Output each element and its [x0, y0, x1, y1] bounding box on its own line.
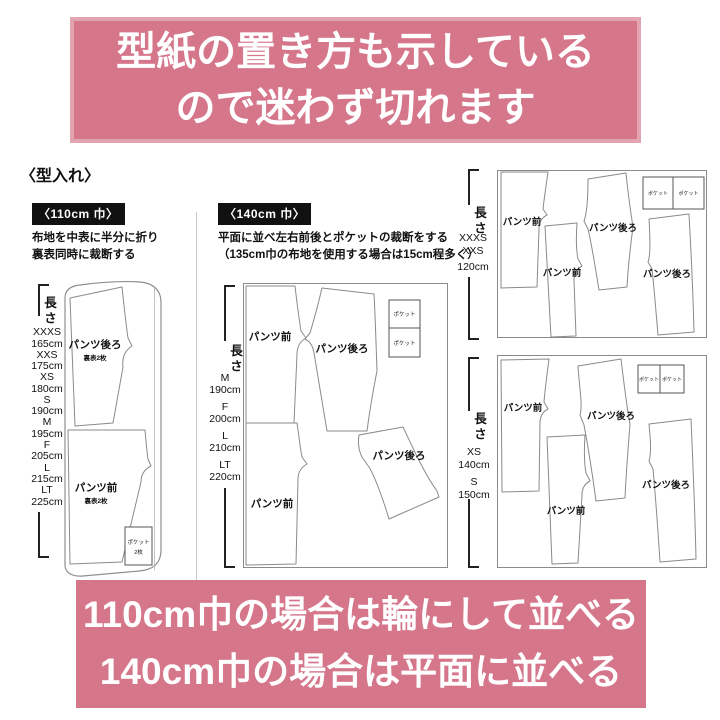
- piece-label-pants-back-2: パンツ後ろ: [643, 268, 691, 280]
- piece-label-pants-back-1: パンツ後ろ: [589, 222, 637, 234]
- flat-layout-diagram-140: パンツ前 パンツ前 パンツ後ろ パンツ後ろ ポケット ポケット: [243, 283, 448, 568]
- size-list-rb: XS140cm S150cm: [452, 446, 496, 506]
- instruction-140-line1: 平面に並べ左右前後とポケットの裁断をする: [218, 230, 448, 247]
- pocket-label: ポケット: [678, 190, 698, 197]
- width-tag-140cm: 〈140cm 巾〉: [218, 203, 311, 225]
- pocket-box: [125, 527, 152, 565]
- pocket-label: ポケット: [648, 190, 668, 197]
- length-label-110: 長さ: [40, 296, 59, 327]
- piece-label-pants-front-bottom: パンツ前: [251, 497, 294, 510]
- section-title: 〈型入れ〉: [20, 162, 100, 186]
- pattern-layout-infographic: 型紙の置き方も示している ので迷わず切れます 〈型入れ〉 〈110cm 巾〉 布…: [0, 0, 720, 720]
- flat-layout-diagram-120: パンツ前 パンツ前 パンツ後ろ パンツ後ろ ポケット ポケット: [497, 170, 707, 338]
- instruction-140-line2: （135cm巾の布地を使用する場合は15cm程多く）: [218, 247, 479, 264]
- dimension-bracket-bottom-rt: [468, 277, 479, 340]
- size-item: XS140cm: [452, 446, 496, 476]
- instruction-110-line1: 布地を中表に半分に折り: [32, 230, 159, 247]
- piece-label-pants-front-2: パンツ前: [543, 267, 582, 279]
- dimension-bracket-top-rt: [468, 169, 479, 205]
- top-banner-line2: ので迷わず切れます: [74, 80, 637, 136]
- piece-label-pants-front-top: パンツ前: [249, 330, 292, 343]
- piece-label-pants-front: パンツ前: [75, 481, 118, 494]
- length-label-rb: 長さ: [470, 412, 489, 443]
- piece-label-pants-front-2: パンツ前: [547, 505, 586, 517]
- piece-label-pants-back-bottom: パンツ後ろ: [372, 449, 425, 462]
- size-item: M190cm: [202, 372, 248, 401]
- piece-label-pants-back-top: パンツ後ろ: [315, 342, 368, 355]
- pocket-label: ポケット: [127, 539, 149, 546]
- piece-label-pants-back-2: パンツ後ろ: [642, 479, 690, 491]
- piece-sublabel-pants-back: 裏表2枚: [82, 353, 107, 362]
- size-item: XXXS: [450, 232, 496, 245]
- pocket-label: ポケット: [393, 340, 415, 347]
- size-item: F200cm: [202, 401, 248, 430]
- pocket-label: ポケット: [662, 376, 682, 383]
- flat-layout-diagram-140-150: パンツ前 パンツ後ろ パンツ前 パンツ後ろ ポケット ポケット: [497, 355, 707, 568]
- width-tag-110cm: 〈110cm 巾〉: [32, 203, 125, 225]
- size-list-rt: XXXS XXS 120cm: [450, 232, 496, 274]
- pocket-label: ポケット: [393, 311, 415, 318]
- piece-label-pants-front-1: パンツ前: [504, 402, 543, 414]
- size-item: 120cm: [450, 261, 496, 274]
- dimension-bracket-bottom-140: [224, 488, 235, 568]
- size-list-140: M190cm F200cm L210cm LT220cm: [202, 372, 248, 488]
- bottom-banner: 110cm巾の場合は輪にして並べる 140cm巾の場合は平面に並べる: [76, 580, 646, 708]
- top-banner: 型紙の置き方も示している ので迷わず切れます: [70, 17, 641, 143]
- piece-label-pants-back-1: パンツ後ろ: [587, 410, 635, 422]
- piece-label-pants-back: パンツ後ろ: [68, 338, 121, 351]
- size-item: L210cm: [202, 430, 248, 459]
- piece-label-pants-front-1: パンツ前: [503, 216, 542, 228]
- column-divider: [196, 212, 197, 582]
- size-item: LT220cm: [202, 459, 248, 488]
- instruction-110-line2: 裏表同時に裁断する: [32, 247, 136, 264]
- top-banner-line1: 型紙の置き方も示している: [74, 24, 637, 80]
- bottom-banner-line2: 140cm巾の場合は平面に並べる: [76, 643, 646, 700]
- piece-sublabel-pants-front: 裏表2枚: [83, 496, 108, 505]
- dimension-bracket-top-rb: [468, 357, 479, 411]
- dimension-bracket-bottom-110: [38, 512, 49, 558]
- pocket-label: ポケット: [639, 376, 659, 383]
- bottom-banner-line1: 110cm巾の場合は輪にして並べる: [76, 586, 646, 643]
- pocket-sublabel: 2枚: [134, 548, 143, 556]
- dimension-bracket-bottom-rb: [468, 499, 479, 568]
- dimension-bracket-top-140: [224, 285, 235, 341]
- size-item: XXS: [450, 245, 496, 258]
- fabric-roll-diagram-110: パンツ後ろ 裏表2枚 パンツ前 裏表2枚 ポケット 2枚: [62, 280, 164, 580]
